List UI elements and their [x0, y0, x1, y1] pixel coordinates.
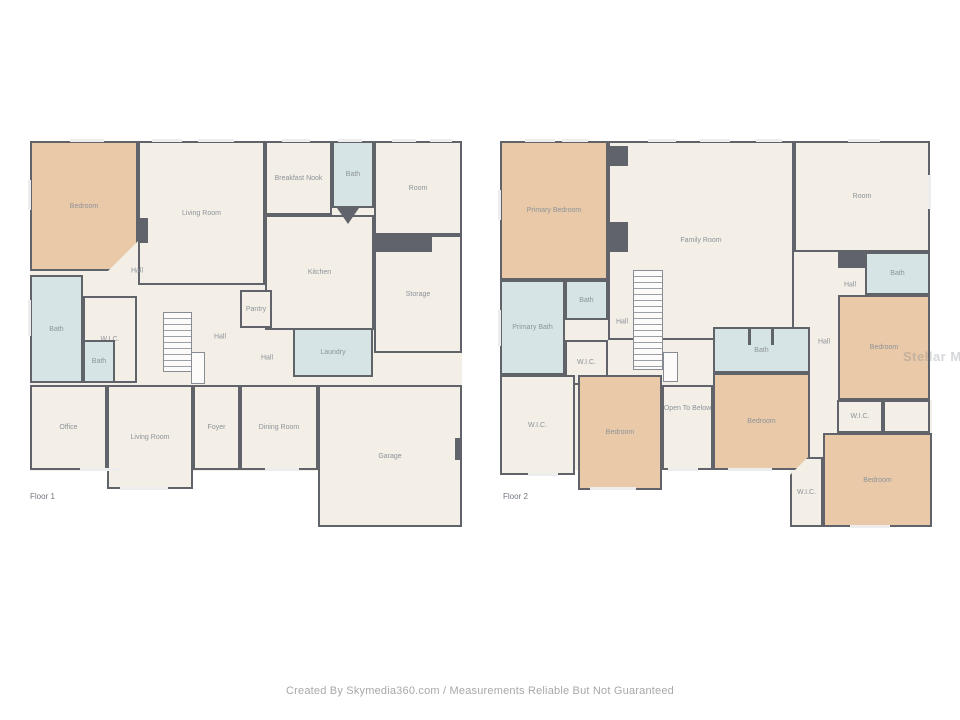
room-label: Laundry: [320, 349, 345, 356]
room-bath: Bath: [30, 275, 83, 383]
room-w-i-c: W.I.C.: [500, 375, 575, 475]
room-label: Office: [59, 424, 77, 431]
room-label: Primary Bath: [512, 324, 552, 331]
room-label: Room: [409, 185, 428, 192]
room-label: Bath: [92, 358, 106, 365]
room-label: Bedroom: [747, 418, 775, 425]
room-label: Bedroom: [863, 477, 891, 484]
room-storage: Storage: [374, 235, 462, 353]
room-bath: Bath: [332, 141, 374, 208]
mls-watermark: Stellar MLS: [903, 349, 960, 364]
room-room: Room: [794, 141, 930, 252]
window-mark: [850, 525, 890, 528]
hall-label: Hall: [261, 355, 273, 362]
window-mark: [80, 468, 120, 471]
room-label: W.I.C.: [528, 422, 547, 429]
room-label: Bedroom: [870, 344, 898, 351]
room-label: Bedroom: [606, 429, 634, 436]
window-mark: [498, 190, 501, 220]
hall-label: Hall: [214, 334, 226, 341]
room-room: Room: [374, 141, 462, 235]
stair-landing: [191, 352, 205, 384]
window-mark: [648, 139, 676, 142]
window-mark: [28, 300, 31, 336]
wall-block: [608, 222, 628, 252]
room-garage: Garage: [318, 385, 462, 527]
stairs: [163, 312, 192, 372]
room-bath: Bath: [865, 252, 930, 295]
window-mark: [668, 468, 698, 471]
room-label: Dining Room: [259, 424, 299, 431]
window-mark: [120, 487, 168, 490]
window-mark: [498, 310, 501, 346]
hall-label: Hall: [844, 282, 856, 289]
floor-title-2: Floor 2: [503, 492, 528, 501]
stairs: [633, 270, 663, 370]
room-open-to-below: Open To Below: [662, 385, 713, 470]
room-label: Foyer: [208, 424, 226, 431]
room-bedroom: Bedroom: [30, 141, 138, 271]
window-mark: [198, 139, 234, 142]
room-label: W.I.C.: [577, 359, 596, 366]
room-dining-room: Dining Room: [240, 385, 318, 470]
room-office: Office: [30, 385, 107, 470]
room-label: Garage: [378, 453, 401, 460]
room-laundry: Laundry: [293, 328, 373, 377]
window-mark: [562, 139, 588, 142]
room-bath: Bath: [565, 280, 608, 320]
room-label: Family Room: [680, 237, 721, 244]
room-living-room: Living Room: [138, 141, 265, 285]
room-label: Bedroom: [70, 203, 98, 210]
room-w-i-c: W.I.C.: [837, 400, 883, 433]
room-label: W.I.C.: [797, 489, 816, 496]
room-label: Bath: [346, 171, 360, 178]
window-mark: [700, 139, 730, 142]
room-label: Living Room: [131, 434, 170, 441]
room-primary-bath: Primary Bath: [500, 280, 565, 375]
wall-block: [455, 438, 462, 460]
room-label: Open To Below: [664, 405, 711, 412]
room-bath: Bath: [83, 340, 115, 383]
wall-block: [374, 237, 432, 252]
window-mark: [28, 180, 31, 210]
wall-block: [138, 218, 148, 243]
window-mark: [70, 139, 104, 142]
room-label: Bath: [49, 326, 63, 333]
window-mark: [152, 139, 182, 142]
room-label: Kitchen: [308, 269, 331, 276]
wall-block: [748, 329, 751, 345]
room-label: Pantry: [246, 306, 266, 313]
window-mark: [590, 487, 636, 490]
room-label: Bath: [579, 297, 593, 304]
room-bedroom: Bedroom: [823, 433, 932, 527]
room-label: Breakfast Nook: [275, 175, 323, 182]
room-pantry: Pantry: [240, 290, 272, 328]
room-label: Bath: [754, 347, 768, 354]
stair-landing: [663, 352, 678, 382]
room-label: Bath: [890, 270, 904, 277]
window-mark: [928, 175, 931, 209]
floor-title-1: Floor 1: [30, 492, 55, 501]
wall-block: [608, 146, 628, 166]
floorplan-page: { "footer": { "credit": "Created By Skym…: [0, 0, 960, 720]
room-bedroom: Bedroom: [713, 373, 810, 470]
window-mark: [756, 139, 782, 142]
room-breakfast-nook: Breakfast Nook: [265, 141, 332, 215]
room-label: Storage: [406, 291, 431, 298]
hall-label: Hall: [616, 319, 628, 326]
credit-text: Created By Skymedia360.com / Measurement…: [0, 685, 960, 697]
window-mark: [430, 139, 452, 142]
room-living-room: Living Room: [107, 385, 193, 489]
room-primary-bedroom: Primary Bedroom: [500, 141, 608, 280]
room-label: Living Room: [182, 210, 221, 217]
room-area: [883, 400, 930, 433]
window-mark: [728, 468, 772, 471]
room-bath: Bath: [713, 327, 810, 373]
room-bedroom: Bedroom: [578, 375, 662, 490]
room-foyer: Foyer: [193, 385, 240, 470]
window-mark: [528, 473, 558, 476]
floorplan-canvas: Living RoomBreakfast NookBathRoomHallKit…: [0, 0, 960, 720]
room-kitchen: Kitchen: [265, 215, 374, 330]
window-mark: [282, 139, 310, 142]
room-bedroom: Bedroom: [838, 295, 930, 400]
room-label: Primary Bedroom: [527, 207, 581, 214]
hall-label: Hall: [818, 339, 830, 346]
window-mark: [848, 139, 880, 142]
window-mark: [392, 139, 416, 142]
window-mark: [525, 139, 555, 142]
window-mark: [265, 468, 299, 471]
room-label: Room: [853, 193, 872, 200]
wall-block: [771, 329, 774, 345]
wall-block: [838, 252, 865, 268]
hall-label: Hall: [131, 268, 143, 275]
room-label: W.I.C.: [850, 413, 869, 420]
window-mark: [338, 139, 362, 142]
